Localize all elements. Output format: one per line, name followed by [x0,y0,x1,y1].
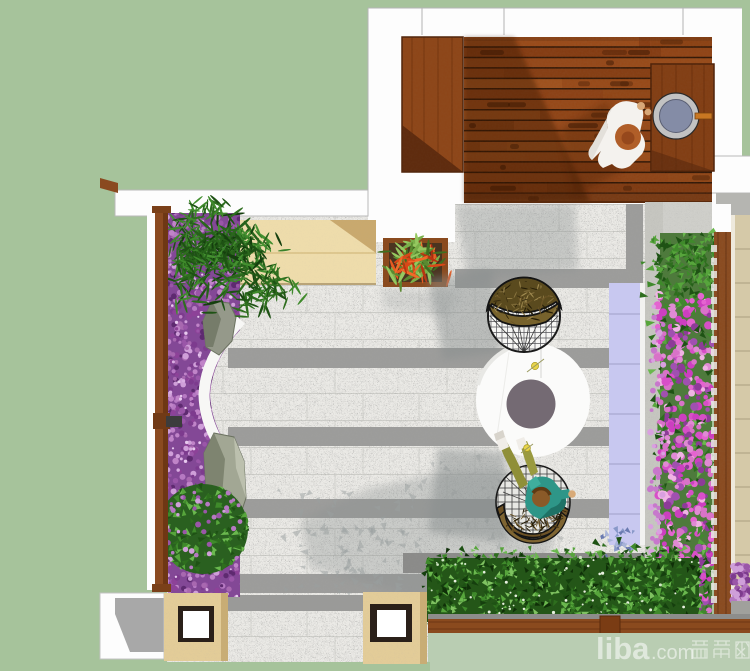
svg-text:.com: .com [651,642,694,664]
svg-text:liba: liba [596,631,650,666]
